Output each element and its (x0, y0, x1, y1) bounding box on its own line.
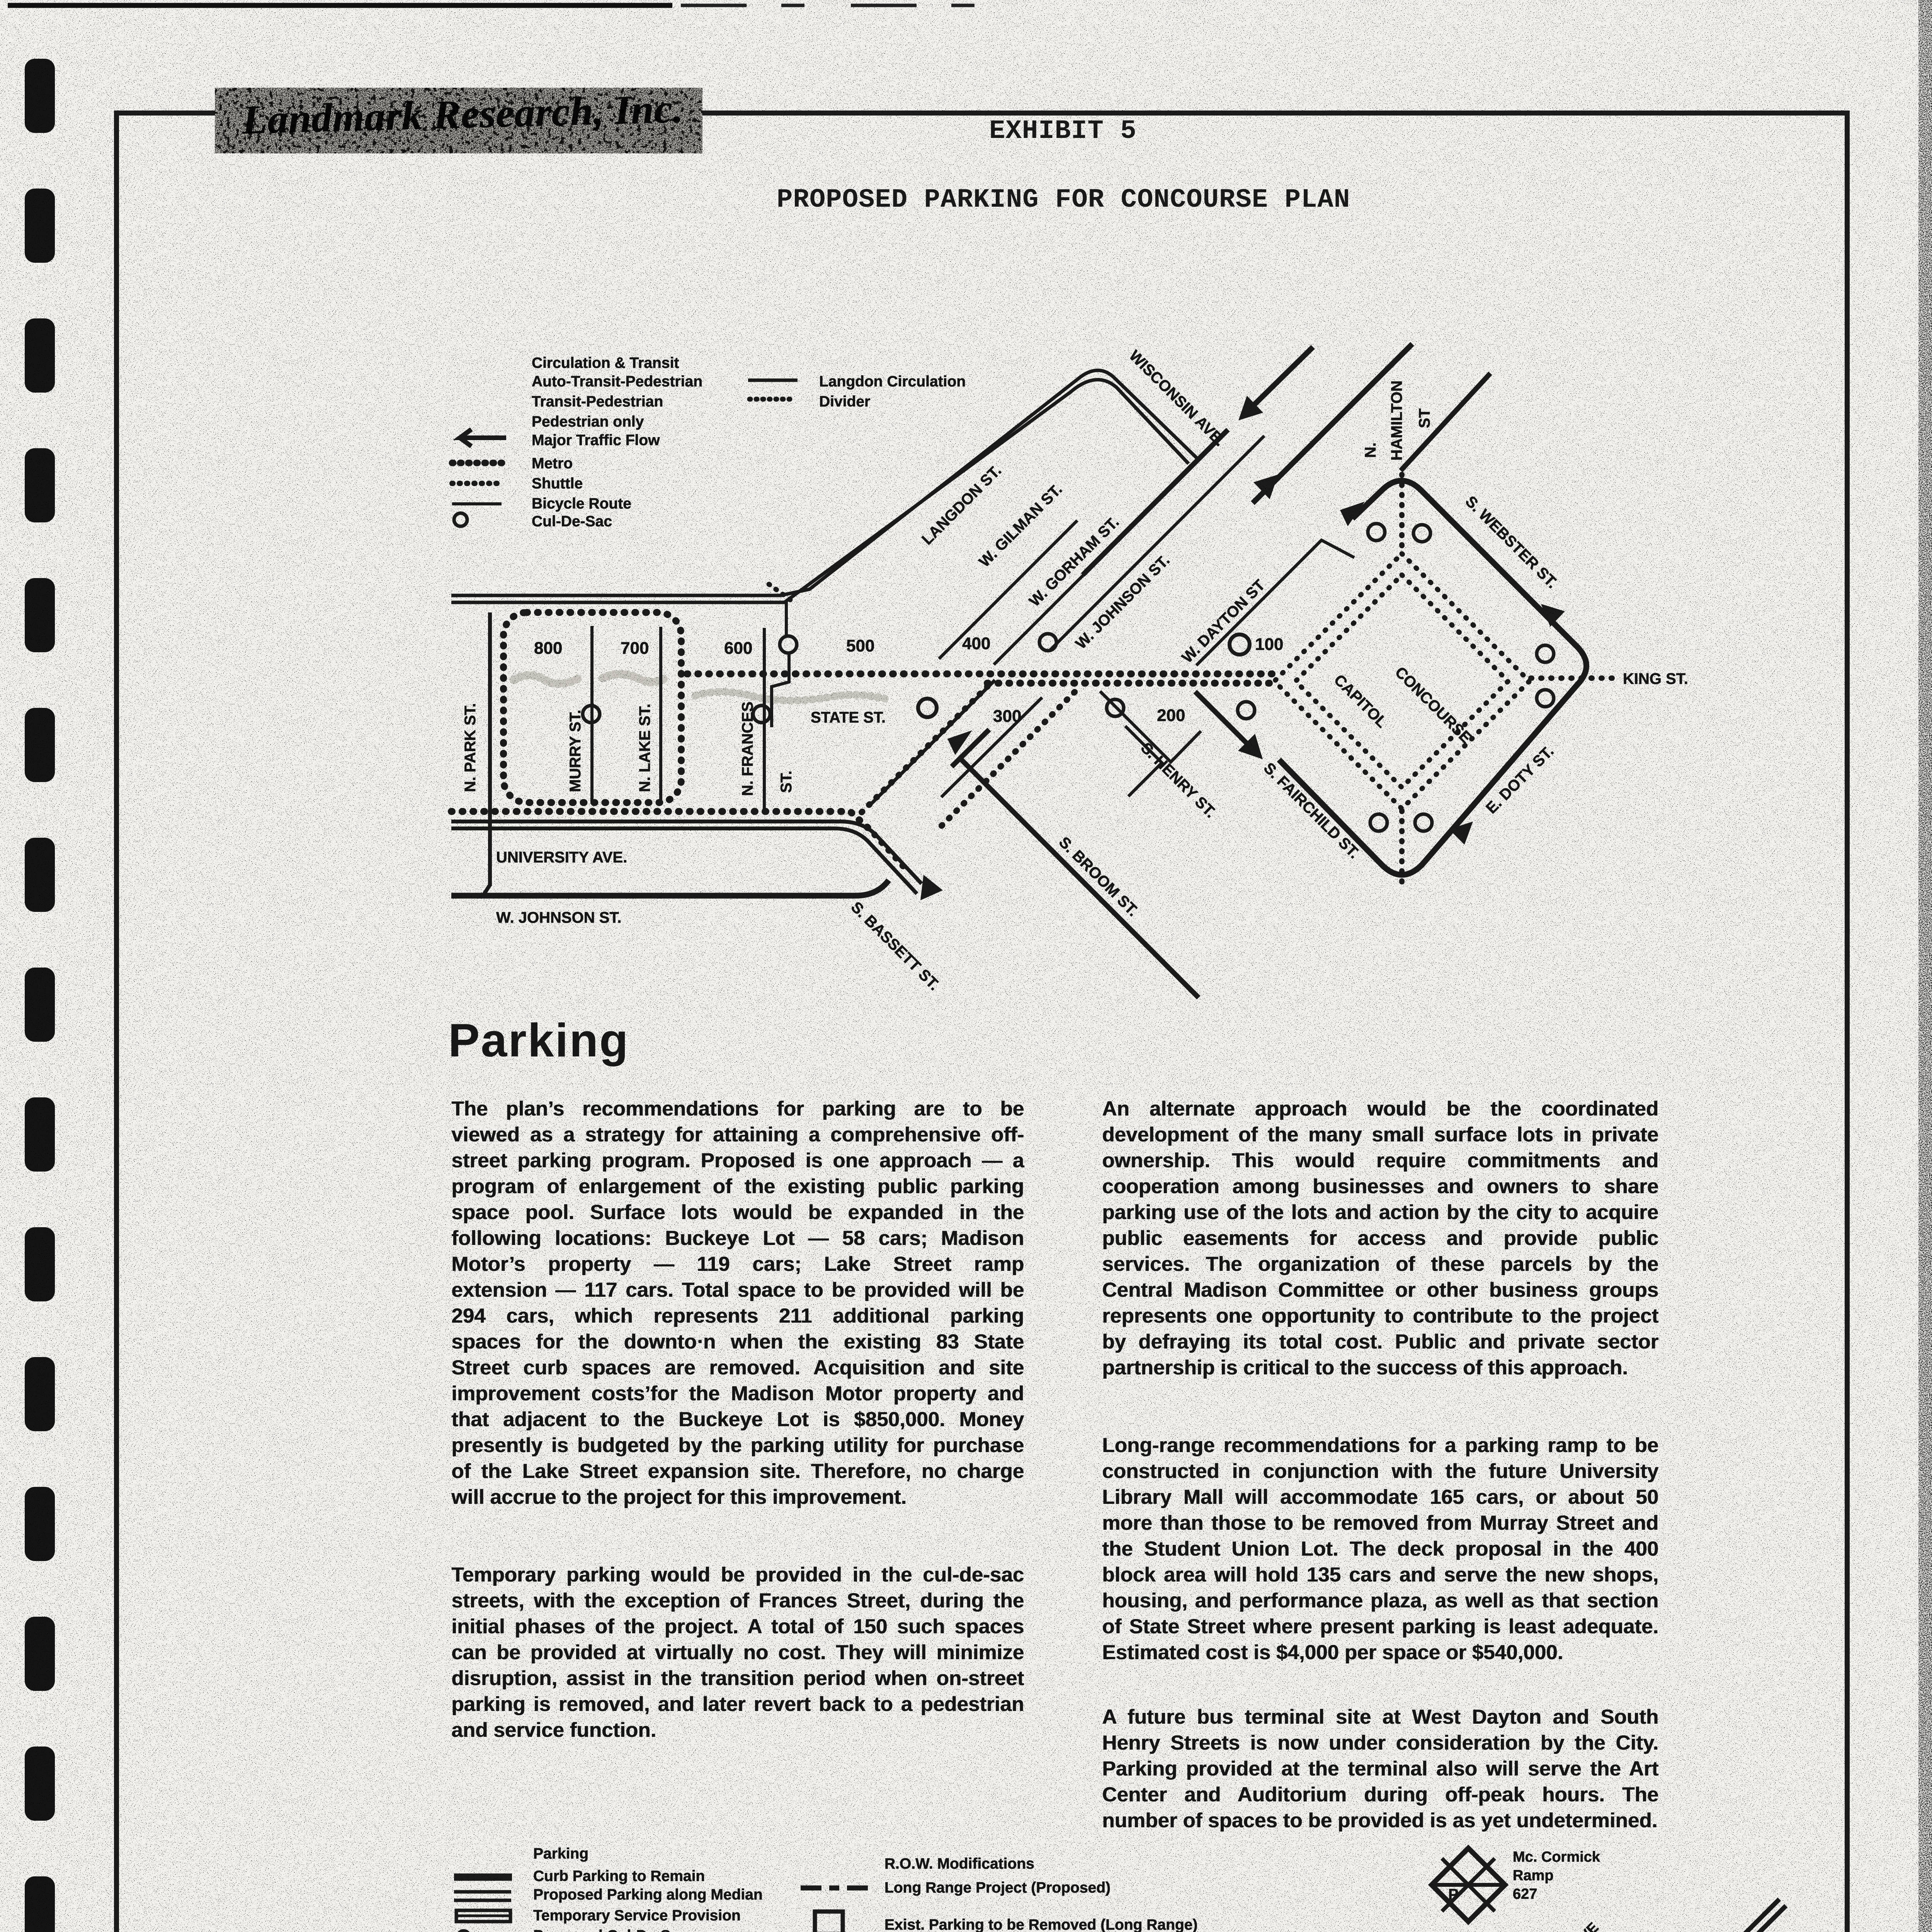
svg-text:LANGDON ST.: LANGDON ST. (918, 462, 1005, 548)
svg-text:400: 400 (962, 634, 990, 653)
svg-text:100: 100 (1255, 635, 1283, 654)
svg-text:STATE ST.: STATE ST. (811, 709, 886, 726)
svg-text:S. BASSETT ST.: S. BASSETT ST. (848, 898, 943, 993)
svg-text:500: 500 (846, 636, 874, 655)
svg-text:600: 600 (724, 639, 752, 658)
svg-text:Bicycle Route: Bicycle Route (532, 495, 631, 512)
svg-text:200: 200 (1157, 706, 1185, 725)
svg-text:800: 800 (534, 639, 562, 658)
svg-text:Divider: Divider (819, 393, 870, 410)
svg-text:N.: N. (1362, 442, 1379, 458)
svg-text:S. FAIRCHILD ST.: S. FAIRCHILD ST. (1260, 759, 1363, 862)
svg-text:R.O.W. Modifications: R.O.W. Modifications (884, 1855, 1034, 1872)
svg-text:Ramp: Ramp (1513, 1867, 1554, 1884)
svg-text:N. LAKE ST.: N. LAKE ST. (636, 704, 653, 792)
svg-text:Cul-De-Sac: Cul-De-Sac (532, 513, 612, 530)
svg-text:N. PARK ST.: N. PARK ST. (462, 703, 479, 792)
svg-text:Proposed Cul-De-Sac: Proposed Cul-De-Sac (533, 1927, 687, 1932)
svg-text:Pedestrian only: Pedestrian only (532, 413, 644, 430)
svg-text:Circulation & Transit: Circulation & Transit (532, 355, 679, 371)
svg-text:UNIVERSITY AVE.: UNIVERSITY AVE. (496, 849, 627, 866)
svg-text:700: 700 (621, 639, 649, 658)
svg-text:Langdon Circulation: Langdon Circulation (819, 373, 966, 390)
svg-text:W. JOHNSON ST.: W. JOHNSON ST. (496, 909, 622, 926)
svg-text:MURRY ST.: MURRY ST. (567, 710, 584, 792)
svg-text:KING ST.: KING ST. (1623, 670, 1688, 687)
svg-text:Exist. Parking to be Removed (: Exist. Parking to be Removed (Long Range… (884, 1917, 1197, 1932)
svg-text:Proposed Parking along Median: Proposed Parking along Median (533, 1886, 763, 1903)
svg-text:Major Traffic Flow: Major Traffic Flow (532, 432, 660, 449)
svg-text:S. HENRY ST.: S. HENRY ST. (1138, 739, 1219, 821)
svg-text:W. GORHAM ST.: W. GORHAM ST. (1026, 514, 1122, 610)
svg-text:WISCONSIN AVE.: WISCONSIN AVE. (1126, 347, 1228, 449)
svg-text:E. WASHINGTON AVE: E. WASHINGTON AVE (1483, 1919, 1602, 1932)
svg-text:S. BROOM ST.: S. BROOM ST. (1056, 833, 1142, 920)
svg-text:Transit-Pedestrian: Transit-Pedestrian (532, 393, 663, 410)
svg-text:300: 300 (993, 707, 1021, 726)
svg-text:ST: ST (1416, 408, 1433, 428)
svg-text:Long Range Project (Proposed): Long Range Project (Proposed) (884, 1879, 1111, 1896)
svg-text:Shuttle: Shuttle (532, 475, 583, 492)
svg-text:Auto-Transit-Pedestrian: Auto-Transit-Pedestrian (532, 373, 702, 390)
svg-text:Metro: Metro (532, 455, 573, 472)
svg-text:CONCOURSE: CONCOURSE (1392, 663, 1475, 747)
svg-text:W. GILMAN ST.: W. GILMAN ST. (976, 481, 1065, 570)
svg-text:Parking: Parking (533, 1845, 588, 1862)
svg-text:Mc. Cormick: Mc. Cormick (1513, 1849, 1600, 1865)
svg-text:627: 627 (1513, 1886, 1537, 1902)
svg-text:HAMILTON: HAMILTON (1388, 381, 1405, 461)
svg-text:Curb Parking to Remain: Curb Parking to Remain (533, 1868, 705, 1884)
svg-text:P: P (1448, 1886, 1459, 1903)
svg-text:N. FRANCES: N. FRANCES (739, 702, 756, 796)
svg-text:ST.: ST. (778, 770, 795, 793)
svg-text:Temporary Service Provision: Temporary Service Provision (533, 1907, 741, 1924)
